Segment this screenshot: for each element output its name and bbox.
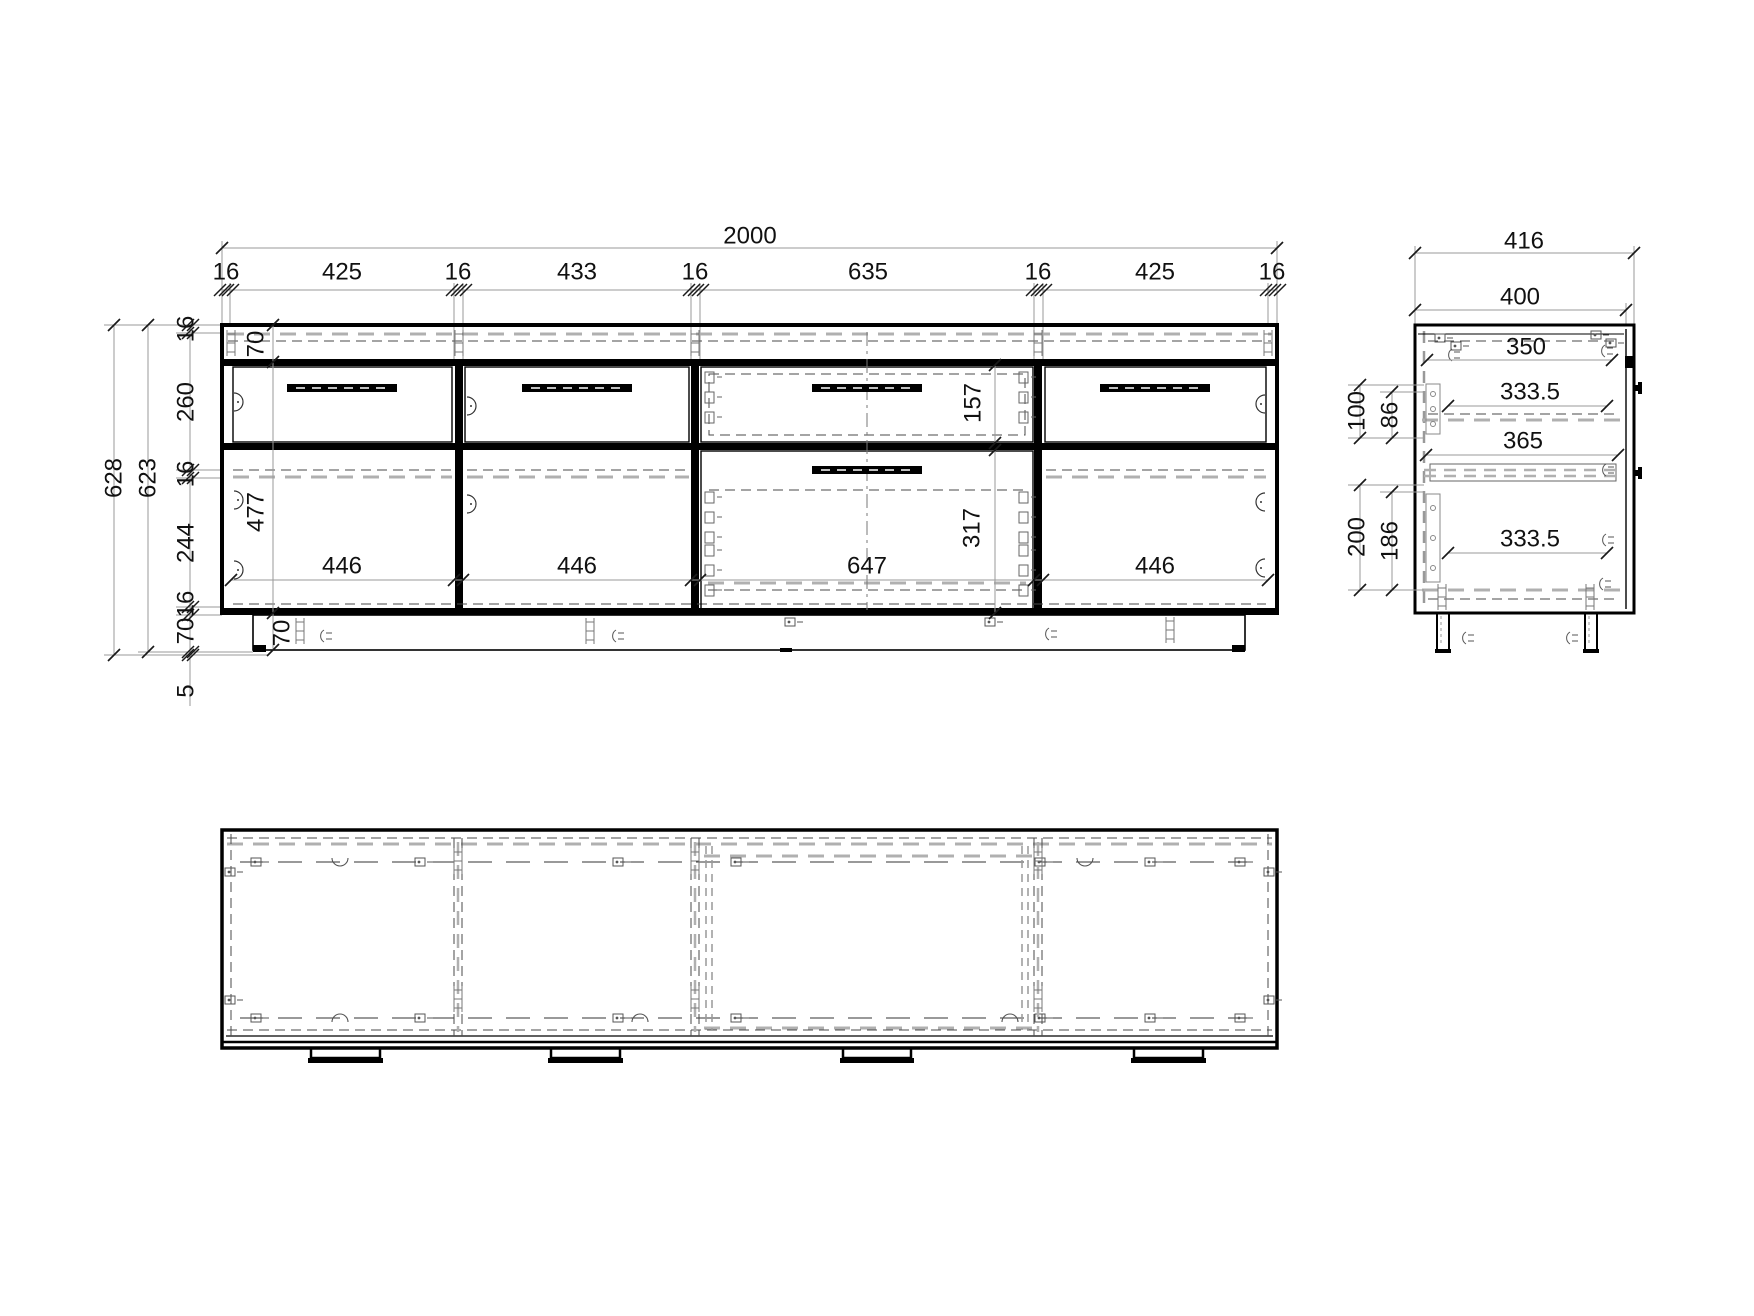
dim-w-16a: 16: [213, 259, 240, 286]
front-view: 2000 16 425 16 433 16 635 16 425: [101, 223, 1287, 707]
front-mid-rail-line: [222, 443, 1277, 450]
dim-interior-height: 477: [243, 492, 270, 532]
bottom-fitting-row-back: [240, 858, 1260, 866]
foot-2: [548, 1048, 623, 1063]
side-rail-outline: [1430, 464, 1616, 481]
dim-opening-4: 446: [1135, 553, 1175, 580]
dim-h-5: 5: [173, 684, 200, 697]
dim-depth-365: 365: [1503, 428, 1543, 455]
front-hidden-shelf: [233, 470, 1266, 477]
front-foot-center: [780, 648, 792, 652]
dim-w-635: 635: [848, 259, 888, 286]
dim-opening-1: 446: [322, 553, 362, 580]
dim-h-16c: 16: [173, 591, 200, 618]
bottom-view: [222, 830, 1282, 1063]
side-front-notch: [1625, 356, 1634, 368]
dim-plinth-height: 70: [269, 620, 296, 647]
bottom-hidden-frame: [227, 834, 1272, 1036]
dim-w-16b: 16: [445, 259, 472, 286]
bottom-outline: [222, 830, 1277, 1048]
dim-w-16c: 16: [682, 259, 709, 286]
drawer-handle: [522, 384, 632, 392]
front-internal-dims: 70 477 70 446 446 647 446 157 317: [225, 319, 1274, 656]
dim-body-height: 623: [135, 458, 162, 498]
drawer-handle: [812, 466, 922, 474]
foot-3: [840, 1048, 914, 1063]
drawer-handle: [812, 384, 922, 392]
dim-depth-333a: 333.5: [1500, 379, 1560, 406]
dim-h-244: 244: [173, 523, 200, 563]
front-bottom-line: [222, 608, 1277, 614]
drawer-handle: [287, 384, 397, 392]
front-foot-right: [1232, 645, 1245, 652]
bottom-fitting-row-front: [240, 1014, 1260, 1022]
dim-w-425a: 425: [322, 259, 362, 286]
foot-4: [1131, 1048, 1206, 1063]
front-carcass: [222, 325, 1277, 614]
side-view: 416 400: [1344, 228, 1643, 654]
front-foot-left: [253, 645, 266, 652]
dim-body-depth: 400: [1500, 284, 1540, 311]
front-top-rail-line: [222, 359, 1277, 366]
dim-h-260: 260: [173, 382, 200, 422]
dim-h-70: 70: [173, 618, 200, 645]
front-top-dim-chain: 16 425 16 433 16 635 16 425 16: [213, 259, 1286, 361]
drawer-front-2: [465, 367, 689, 442]
side-legs: [1435, 613, 1599, 653]
side-leg-left: [1437, 613, 1449, 651]
front-drawers: [233, 332, 1266, 612]
dim-v-200: 200: [1344, 517, 1371, 557]
dim-h-16b: 16: [173, 461, 200, 488]
dim-w-425b: 425: [1135, 259, 1175, 286]
dim-top-drawer: 157: [960, 383, 987, 423]
dim-v-186: 186: [1377, 521, 1404, 561]
bottom-edge-fittings: [225, 868, 1282, 1004]
drawer-front-4: [1045, 367, 1266, 442]
bottom-drawer-slides: [704, 846, 1032, 1030]
bottom-dividers-hidden: [454, 838, 1042, 1036]
drawer-front-1: [233, 367, 452, 442]
side-depth-dims: 350 333.5 365 333.5: [1420, 334, 1624, 560]
foot-1: [308, 1048, 383, 1063]
dim-bottom-drawer: 317: [959, 508, 986, 548]
dim-overall-depth: 416: [1504, 228, 1544, 255]
front-plinth: [253, 615, 1245, 652]
dim-opening-2: 446: [557, 553, 597, 580]
dim-overall-height: 628: [101, 458, 128, 498]
dim-v-86: 86: [1377, 402, 1404, 429]
cad-drawing: 2000 16 425 16 433 16 635 16 425: [0, 0, 1754, 1316]
dim-opening-3: 647: [847, 553, 887, 580]
dim-w-16d: 16: [1025, 259, 1052, 286]
dim-depth-333b: 333.5: [1500, 526, 1560, 553]
dim-w-16e: 16: [1259, 259, 1286, 286]
drawer-handle: [1100, 384, 1210, 392]
drawing-sheet: 2000 16 425 16 433 16 635 16 425: [0, 0, 1754, 1316]
side-carcass: [1415, 325, 1642, 613]
dim-h-16a: 16: [173, 316, 200, 343]
bottom-feet: [308, 1048, 1206, 1063]
front-overall-width-dim: 2000: [216, 223, 1283, 326]
dim-depth-350: 350: [1506, 334, 1546, 361]
dim-w-433: 433: [557, 259, 597, 286]
dim-overall-width: 2000: [723, 223, 776, 250]
side-left-dims: 100 86 200 186: [1344, 379, 1425, 596]
dim-v-100: 100: [1344, 391, 1371, 431]
front-hinge-marks: [234, 393, 1265, 579]
side-leg-right: [1585, 613, 1597, 651]
dim-top-rail: 70: [243, 331, 270, 358]
